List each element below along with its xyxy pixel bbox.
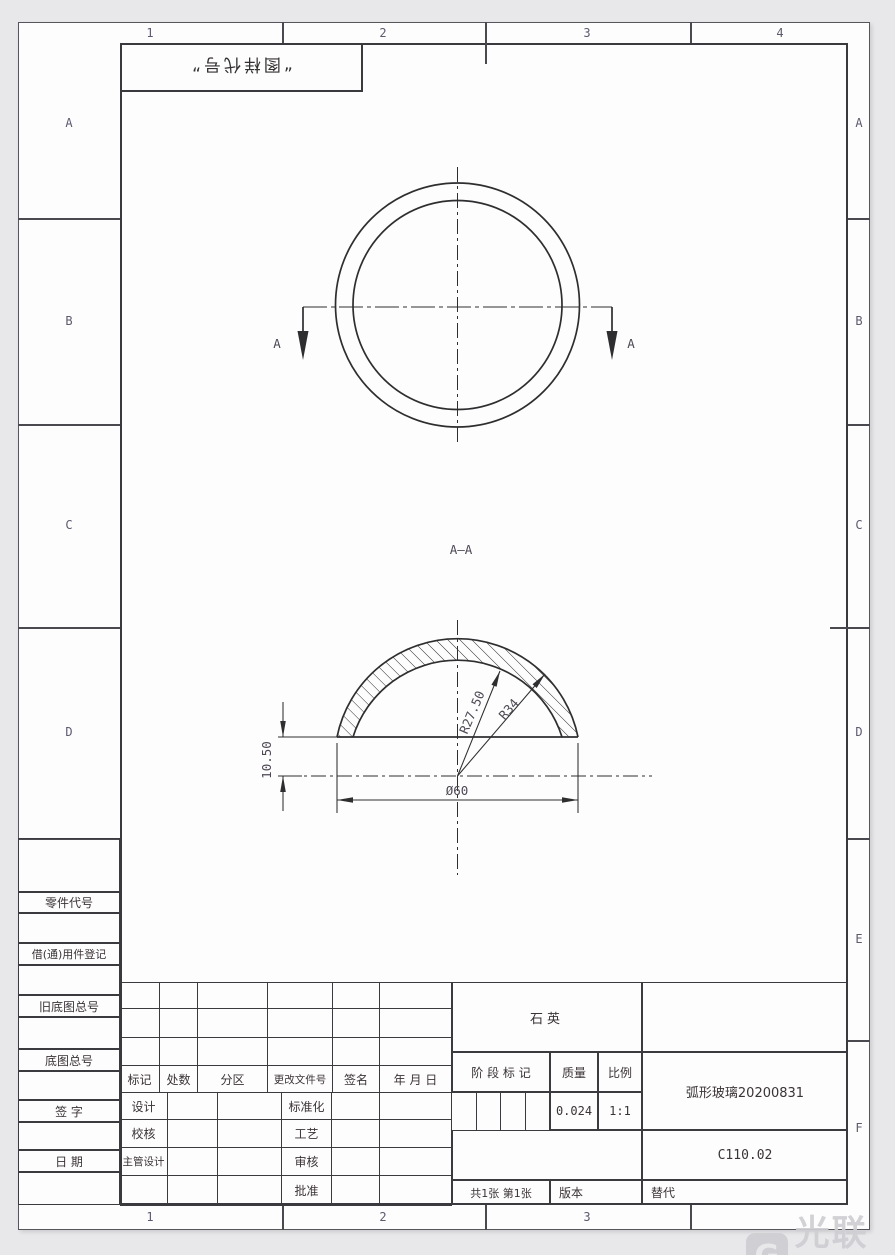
watermark-logo-icon: G xyxy=(746,1233,788,1255)
left-box-empty xyxy=(18,1122,120,1150)
left-box-empty xyxy=(18,838,120,892)
zone-tick xyxy=(282,1205,284,1230)
change-header-zone: 分区 xyxy=(198,1066,268,1093)
zone-col-3-top: 3 xyxy=(583,26,590,40)
change-header-sign: 签名 xyxy=(333,1066,380,1093)
old-master-no-label: 旧底图总号 xyxy=(18,995,120,1017)
zone-col-1-top: 1 xyxy=(146,26,153,40)
dim-outer-radius: R34 xyxy=(496,696,522,723)
process-label: 工艺 xyxy=(282,1120,332,1148)
borrowed-parts-label: 借(通)用件登记 xyxy=(18,943,120,965)
dim-diameter: Ø60 xyxy=(446,783,469,798)
material-value: 石英 xyxy=(452,982,642,1052)
zone-tick xyxy=(690,22,692,43)
signature-label: 签 字 xyxy=(18,1100,120,1122)
arrow-inner-radius xyxy=(491,671,500,687)
zone-row-c-right: C xyxy=(855,518,862,532)
stage-mark-cells xyxy=(452,1092,550,1130)
watermark-text: 光联社 xyxy=(795,1205,895,1255)
zone-tick xyxy=(485,1205,487,1230)
approve-label: 批准 xyxy=(282,1176,332,1206)
mass-label: 质量 xyxy=(550,1052,598,1092)
left-box-empty xyxy=(18,913,120,943)
zone-row-a-right: A xyxy=(855,116,862,130)
zone-row-b-left: B xyxy=(65,314,72,328)
part-name: 弧形玻璃20200831 xyxy=(642,1052,848,1130)
zone-col-2-top: 2 xyxy=(379,26,386,40)
stage-mark-label: 阶 段 标 记 xyxy=(452,1052,550,1092)
signature-table: 设计 标准化 校核 工艺 主管设计 审核 批准 xyxy=(120,1092,452,1205)
date-label: 日 期 xyxy=(18,1150,120,1172)
zone-tick xyxy=(485,22,487,43)
plan-view: A A xyxy=(273,167,635,443)
section-view-label: A—A xyxy=(450,542,473,557)
diameter-arrow-left xyxy=(337,797,353,803)
zone-row-a-left: A xyxy=(65,116,72,130)
drawing-number: C110.02 xyxy=(642,1130,848,1180)
sheet-count: 共1张 第1张 xyxy=(452,1180,550,1205)
left-box-empty xyxy=(18,965,120,995)
change-header-date: 年 月 日 xyxy=(380,1066,452,1093)
cad-drawing-page: 1 2 3 4 1 2 3 A B C D A B C D E F “图样代号”… xyxy=(0,0,895,1255)
zone-row-f-right: F xyxy=(855,1121,862,1135)
replace-label: 替代 xyxy=(642,1180,848,1205)
company-box-empty xyxy=(642,982,848,1052)
zone-tick xyxy=(18,627,120,629)
zone-col-1-bottom: 1 xyxy=(146,1210,153,1224)
watermark: G 光联社 xyxy=(746,1205,895,1255)
zone-tick xyxy=(690,1205,692,1230)
change-record-table: 标记 处数 分区 更改文件号 签名 年 月 日 xyxy=(120,982,452,1092)
mass-value: 0.024 xyxy=(550,1092,598,1130)
zone-row-e-right: E xyxy=(855,932,862,946)
zone-row-d-left: D xyxy=(65,725,72,739)
zone-tick xyxy=(282,22,284,43)
zone-tick xyxy=(848,424,870,426)
zone-tick xyxy=(848,627,870,629)
zone-col-2-bottom: 2 xyxy=(379,1210,386,1224)
change-header-mark: 标记 xyxy=(120,1066,160,1093)
check-label: 校核 xyxy=(120,1120,168,1148)
dim-height: 10.50 xyxy=(259,741,274,779)
zone-row-c-left: C xyxy=(65,518,72,532)
diameter-arrow-right xyxy=(562,797,578,803)
section-arrow-right xyxy=(607,331,618,360)
scale-value: 1:1 xyxy=(598,1092,642,1130)
zone-tick xyxy=(18,424,120,426)
zone-row-d-right: D xyxy=(855,725,862,739)
part-code-label: 零件代号 xyxy=(18,892,120,913)
master-no-label: 底图总号 xyxy=(18,1049,120,1071)
left-box-empty xyxy=(18,1071,120,1100)
left-box-empty xyxy=(18,1017,120,1049)
height-arrow-bottom xyxy=(280,776,286,792)
zone-tick xyxy=(18,218,120,220)
zone-tick xyxy=(848,1040,870,1042)
section-view: R27.50 R34 Ø60 10.50 xyxy=(259,620,652,875)
spare-box-empty xyxy=(452,1130,642,1180)
zone-tick xyxy=(848,218,870,220)
section-letter-right: A xyxy=(627,336,635,351)
zone-col-4-top: 4 xyxy=(776,26,783,40)
design-label: 设计 xyxy=(120,1093,168,1120)
change-header-count: 处数 xyxy=(160,1066,198,1093)
height-extension-lines xyxy=(278,737,340,776)
scale-label: 比例 xyxy=(598,1052,642,1092)
zone-row-b-right: B xyxy=(855,314,862,328)
change-header-fileno: 更改文件号 xyxy=(268,1066,333,1093)
height-arrow-top xyxy=(280,721,286,737)
audit-label: 审核 xyxy=(282,1148,332,1176)
zone-col-3-bottom: 3 xyxy=(583,1210,590,1224)
version-label: 版本 xyxy=(550,1180,642,1205)
standardization-label: 标准化 xyxy=(282,1093,332,1120)
chief-design-label: 主管设计 xyxy=(120,1148,168,1176)
zone-tick xyxy=(848,838,870,840)
section-letter-left: A xyxy=(273,336,281,351)
left-box-empty xyxy=(18,1172,120,1205)
drawing-views: A A A—A R27.50 R34 Ø60 xyxy=(120,43,848,982)
section-arrow-left xyxy=(298,331,309,360)
